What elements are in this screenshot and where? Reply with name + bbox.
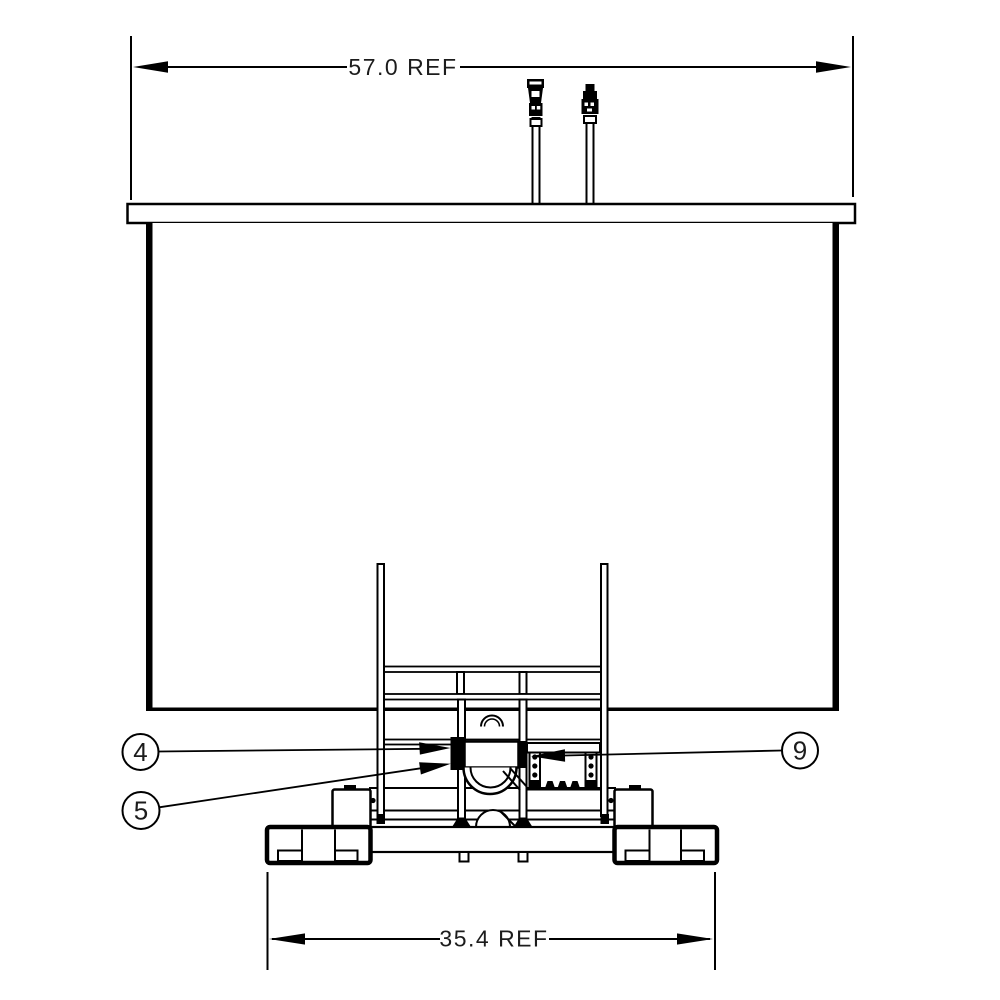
bracket-tooth — [557, 781, 568, 790]
foot-step — [626, 851, 650, 862]
center-mechanism — [464, 716, 528, 795]
callout-9-number: 9 — [793, 736, 807, 766]
overall-width-label: 57.0 REF — [348, 54, 457, 80]
callout-4-number: 4 — [133, 737, 147, 767]
riser-block-left — [333, 785, 376, 828]
pump-shaft-block-left — [451, 737, 466, 770]
bracket-bolt — [532, 772, 537, 777]
fork-pocket-left — [267, 827, 371, 863]
bottom-dimension: 35.4 REF — [268, 872, 716, 970]
engineering-drawing: 57.0 REF — [0, 0, 1000, 1000]
hopper-top-lip — [128, 204, 856, 223]
drawing-sheet: 57.0 REF — [0, 0, 1000, 1000]
rail-slot-right — [520, 672, 527, 694]
foot-step — [335, 851, 358, 862]
top-dimension: 57.0 REF — [131, 36, 853, 200]
dimension-arrow-right — [677, 933, 713, 944]
callout-5-number: 5 — [134, 796, 148, 826]
callout-5-arrow — [419, 762, 451, 774]
riser-tab — [629, 785, 641, 790]
dimension-arrow-left — [133, 61, 168, 73]
pump-shaft-block-right — [519, 741, 527, 768]
riser-bolt — [608, 798, 613, 803]
cable-connector-left-icon — [527, 79, 544, 205]
riser-tab — [344, 785, 356, 790]
base-tab-right — [519, 852, 528, 862]
riser-block-right — [608, 785, 652, 828]
base-width-label: 35.4 REF — [439, 926, 548, 952]
bracket-tooth — [570, 781, 581, 790]
foot-step — [681, 851, 704, 862]
dimension-arrow-right — [816, 61, 851, 73]
base-channel — [370, 827, 615, 852]
frame-upright-left — [378, 564, 385, 816]
cross-rail-middle — [384, 694, 601, 700]
cross-rail-upper — [384, 667, 601, 673]
frame-upright-right — [601, 564, 608, 816]
upright-foot-right — [601, 814, 610, 824]
hopper-body — [146, 223, 839, 711]
callout-4-leader — [159, 749, 426, 752]
fork-pocket-right — [615, 827, 718, 863]
riser-bolt — [370, 798, 375, 803]
base-tab-left — [460, 852, 469, 862]
upright-foot-left — [377, 814, 386, 824]
bracket-tooth — [545, 781, 556, 790]
dimension-arrow-left — [269, 933, 305, 944]
bracket-bolt — [588, 772, 593, 777]
rail-slot-left — [457, 672, 464, 694]
bracket-bolt — [532, 763, 537, 768]
cable-connector-right-icon — [582, 84, 599, 205]
foot-step — [278, 851, 302, 862]
pump-box — [465, 742, 519, 768]
bracket-bolt — [588, 763, 593, 768]
